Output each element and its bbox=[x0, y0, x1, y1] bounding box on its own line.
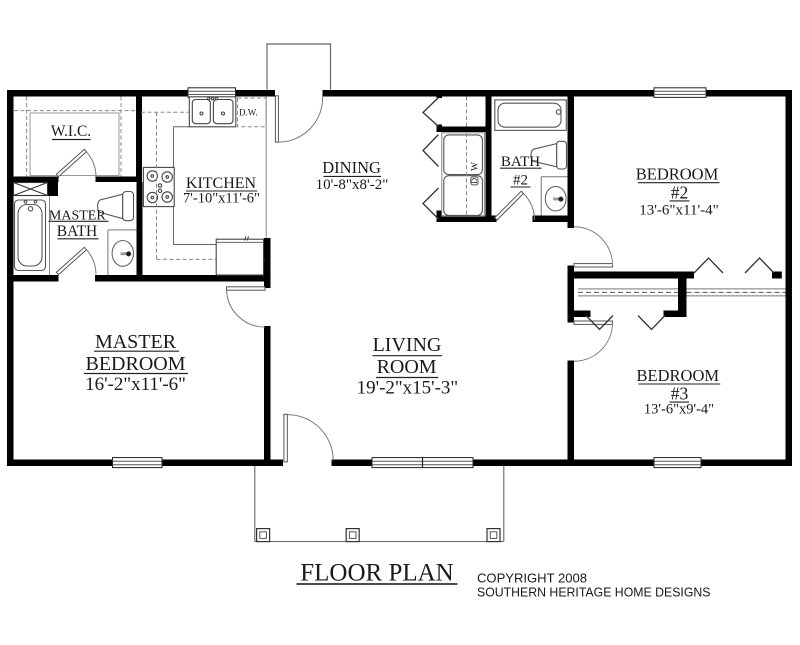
svg-text:13'-6"x11'-4": 13'-6"x11'-4" bbox=[639, 203, 719, 219]
svg-text:#2: #2 bbox=[671, 182, 689, 202]
svg-text:16'-2"x11'-6": 16'-2"x11'-6" bbox=[85, 374, 186, 395]
svg-text:BEDROOM: BEDROOM bbox=[85, 353, 185, 375]
svg-text:BATH: BATH bbox=[501, 154, 540, 170]
svg-text:KITCHEN: KITCHEN bbox=[186, 175, 257, 192]
svg-text:D.W.: D.W. bbox=[239, 108, 258, 118]
svg-text:7'-10"x11'-6": 7'-10"x11'-6" bbox=[183, 191, 260, 207]
svg-text:W.I.C.: W.I.C. bbox=[51, 123, 91, 140]
svg-text:LIVING: LIVING bbox=[373, 334, 442, 356]
svg-text:W: W bbox=[471, 162, 481, 171]
svg-text:ROOM: ROOM bbox=[377, 356, 437, 378]
svg-text:#3: #3 bbox=[671, 384, 689, 404]
svg-text:10'-8"x8'-2": 10'-8"x8'-2" bbox=[316, 177, 389, 193]
svg-text:BEDROOM: BEDROOM bbox=[636, 165, 719, 184]
svg-text:MASTER: MASTER bbox=[95, 331, 177, 353]
svg-text:13'-6"x9'-4": 13'-6"x9'-4" bbox=[644, 402, 714, 418]
svg-text:SOUTHERN HERITAGE HOME DESI: SOUTHERN HERITAGE HOME DESIGNS bbox=[477, 585, 711, 600]
svg-text:#2: #2 bbox=[513, 173, 528, 189]
svg-text:COPYRIGHT 2008: COPYRIGHT 2008 bbox=[477, 570, 587, 585]
svg-text:D: D bbox=[470, 178, 479, 184]
svg-text:FLOOR PLAN: FLOOR PLAN bbox=[300, 560, 454, 587]
svg-text:19'-2"x15'-3": 19'-2"x15'-3" bbox=[357, 378, 459, 399]
svg-text:DINING: DINING bbox=[322, 158, 381, 177]
svg-text:BATH: BATH bbox=[57, 223, 97, 240]
svg-text:BEDROOM: BEDROOM bbox=[637, 366, 720, 385]
